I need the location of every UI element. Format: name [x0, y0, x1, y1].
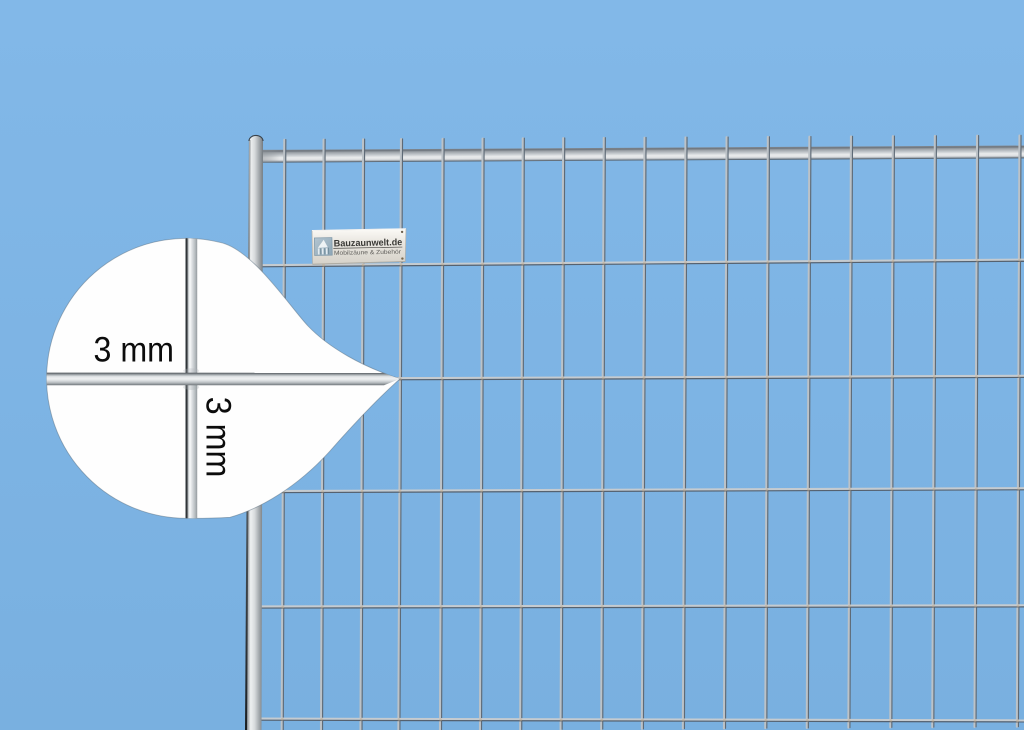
svg-text:3 mm: 3 mm [199, 397, 239, 478]
svg-text:Bauzaunwelt.de: Bauzaunwelt.de [334, 236, 403, 248]
svg-text:Mobilzäune & Zubehör: Mobilzäune & Zubehör [334, 250, 401, 257]
svg-text:3 mm: 3 mm [94, 330, 175, 370]
